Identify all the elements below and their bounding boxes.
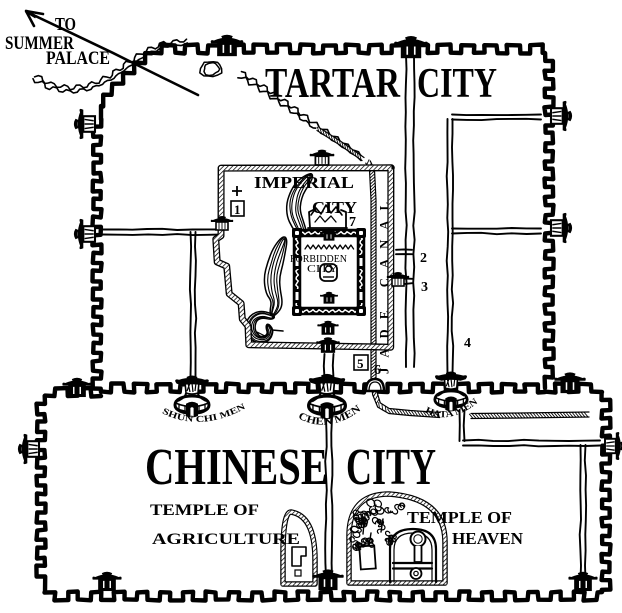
svg-text:2: 2	[420, 251, 427, 266]
svg-text:CHINESE: CHINESE	[145, 439, 328, 496]
svg-text:TARTAR: TARTAR	[265, 61, 401, 107]
svg-text:CITY: CITY	[417, 61, 497, 107]
svg-text:IMPERIAL: IMPERIAL	[254, 173, 354, 192]
svg-text:PALACE: PALACE	[46, 48, 110, 69]
svg-text:TEMPLE OF: TEMPLE OF	[150, 502, 259, 519]
svg-text:TO: TO	[55, 14, 76, 34]
svg-text:1: 1	[234, 202, 241, 217]
svg-text:3: 3	[421, 280, 428, 295]
svg-text:5: 5	[357, 356, 364, 371]
svg-text:7: 7	[349, 215, 356, 230]
svg-text:HEAVEN: HEAVEN	[452, 529, 523, 548]
svg-text:CITY: CITY	[307, 264, 339, 275]
svg-text:CITY: CITY	[346, 439, 436, 496]
svg-text:4: 4	[464, 336, 471, 351]
svg-text:AGRICULTURE: AGRICULTURE	[152, 531, 300, 548]
svg-text:TEMPLE OF: TEMPLE OF	[407, 508, 512, 527]
svg-text:CITY: CITY	[312, 198, 357, 217]
